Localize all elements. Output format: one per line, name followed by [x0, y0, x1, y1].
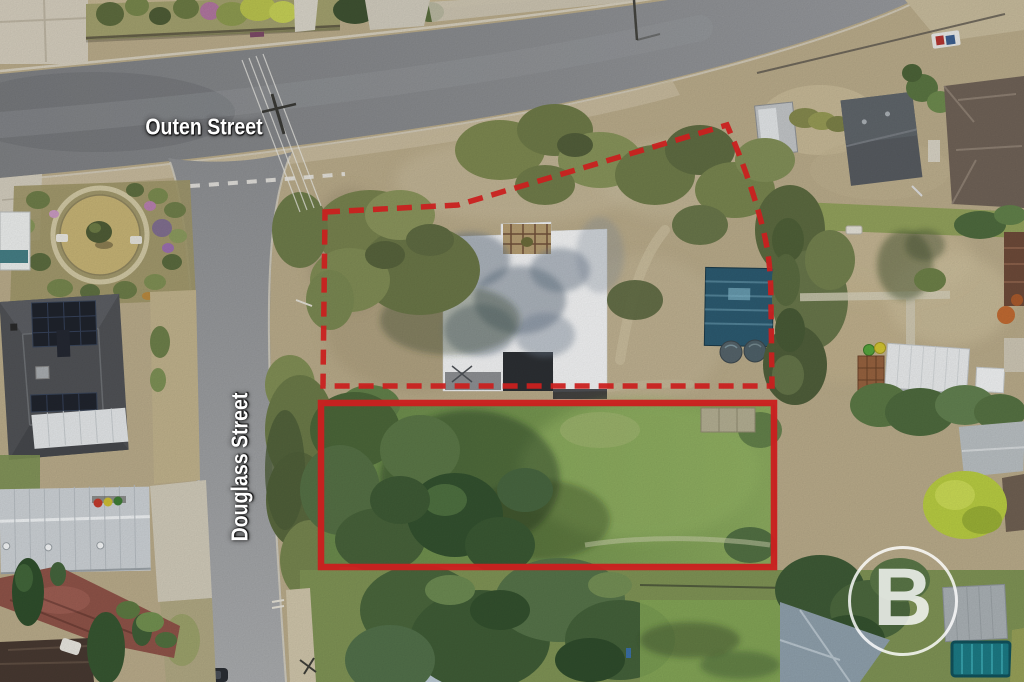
- outen-street-label: Outen Street: [145, 116, 262, 139]
- watermark-letter: B: [873, 557, 932, 639]
- aerial-photo: Outen Street Douglass Street B: [0, 0, 1024, 682]
- agency-watermark-logo: B: [848, 546, 958, 656]
- douglass-street-label: Douglass Street: [229, 393, 252, 542]
